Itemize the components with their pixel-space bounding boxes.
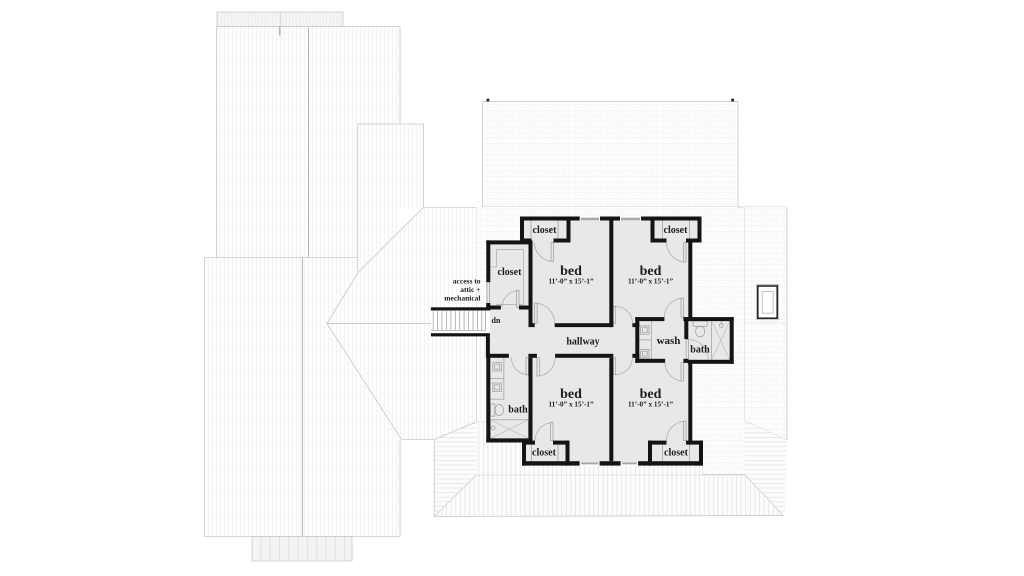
svg-text:closet: closet [533, 225, 558, 236]
svg-text:11’-0” x 15’-1”: 11’-0” x 15’-1” [548, 401, 594, 409]
svg-text:dn: dn [492, 316, 501, 325]
svg-text:bath: bath [690, 345, 710, 356]
svg-text:closet: closet [532, 448, 557, 459]
svg-text:wash: wash [657, 335, 681, 347]
svg-text:11’-0” x 15’-1”: 11’-0” x 15’-1” [548, 278, 594, 286]
svg-text:closet: closet [664, 448, 689, 459]
svg-text:11’-0” x 15’-1”: 11’-0” x 15’-1” [628, 278, 674, 286]
svg-text:hallway: hallway [566, 337, 599, 348]
svg-text:11’-0” x 15’-1”: 11’-0” x 15’-1” [628, 401, 674, 409]
svg-text:bath: bath [508, 405, 528, 416]
svg-text:closet: closet [498, 267, 523, 278]
svg-text:mechanical: mechanical [444, 293, 480, 302]
svg-text:closet: closet [664, 225, 689, 236]
